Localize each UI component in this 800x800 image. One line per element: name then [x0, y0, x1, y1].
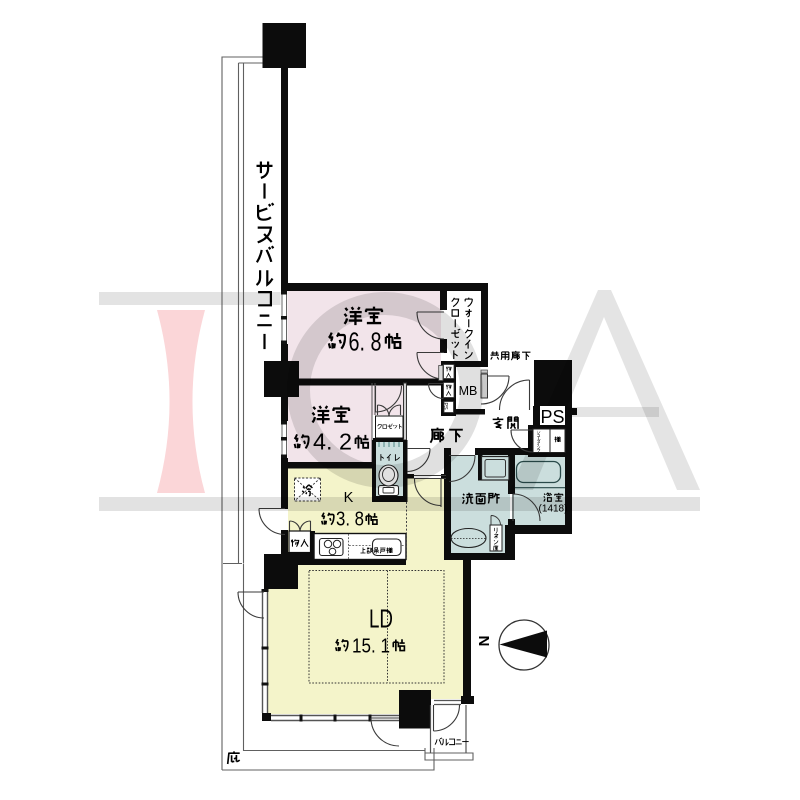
svg-text:6. 8: 6. 8 [349, 327, 382, 357]
svg-text:N: N [476, 636, 493, 647]
svg-text:3. 8: 3. 8 [336, 509, 364, 531]
svg-text:(1418): (1418) [539, 504, 568, 515]
svg-text:K: K [344, 490, 354, 506]
svg-text:PS: PS [442, 402, 448, 410]
svg-text:4. 2: 4. 2 [313, 429, 352, 455]
svg-text:LD: LD [369, 604, 393, 634]
svg-text:MB: MB [459, 384, 478, 398]
svg-text:15. 1: 15. 1 [352, 635, 390, 658]
svg-text:PS: PS [540, 407, 564, 427]
